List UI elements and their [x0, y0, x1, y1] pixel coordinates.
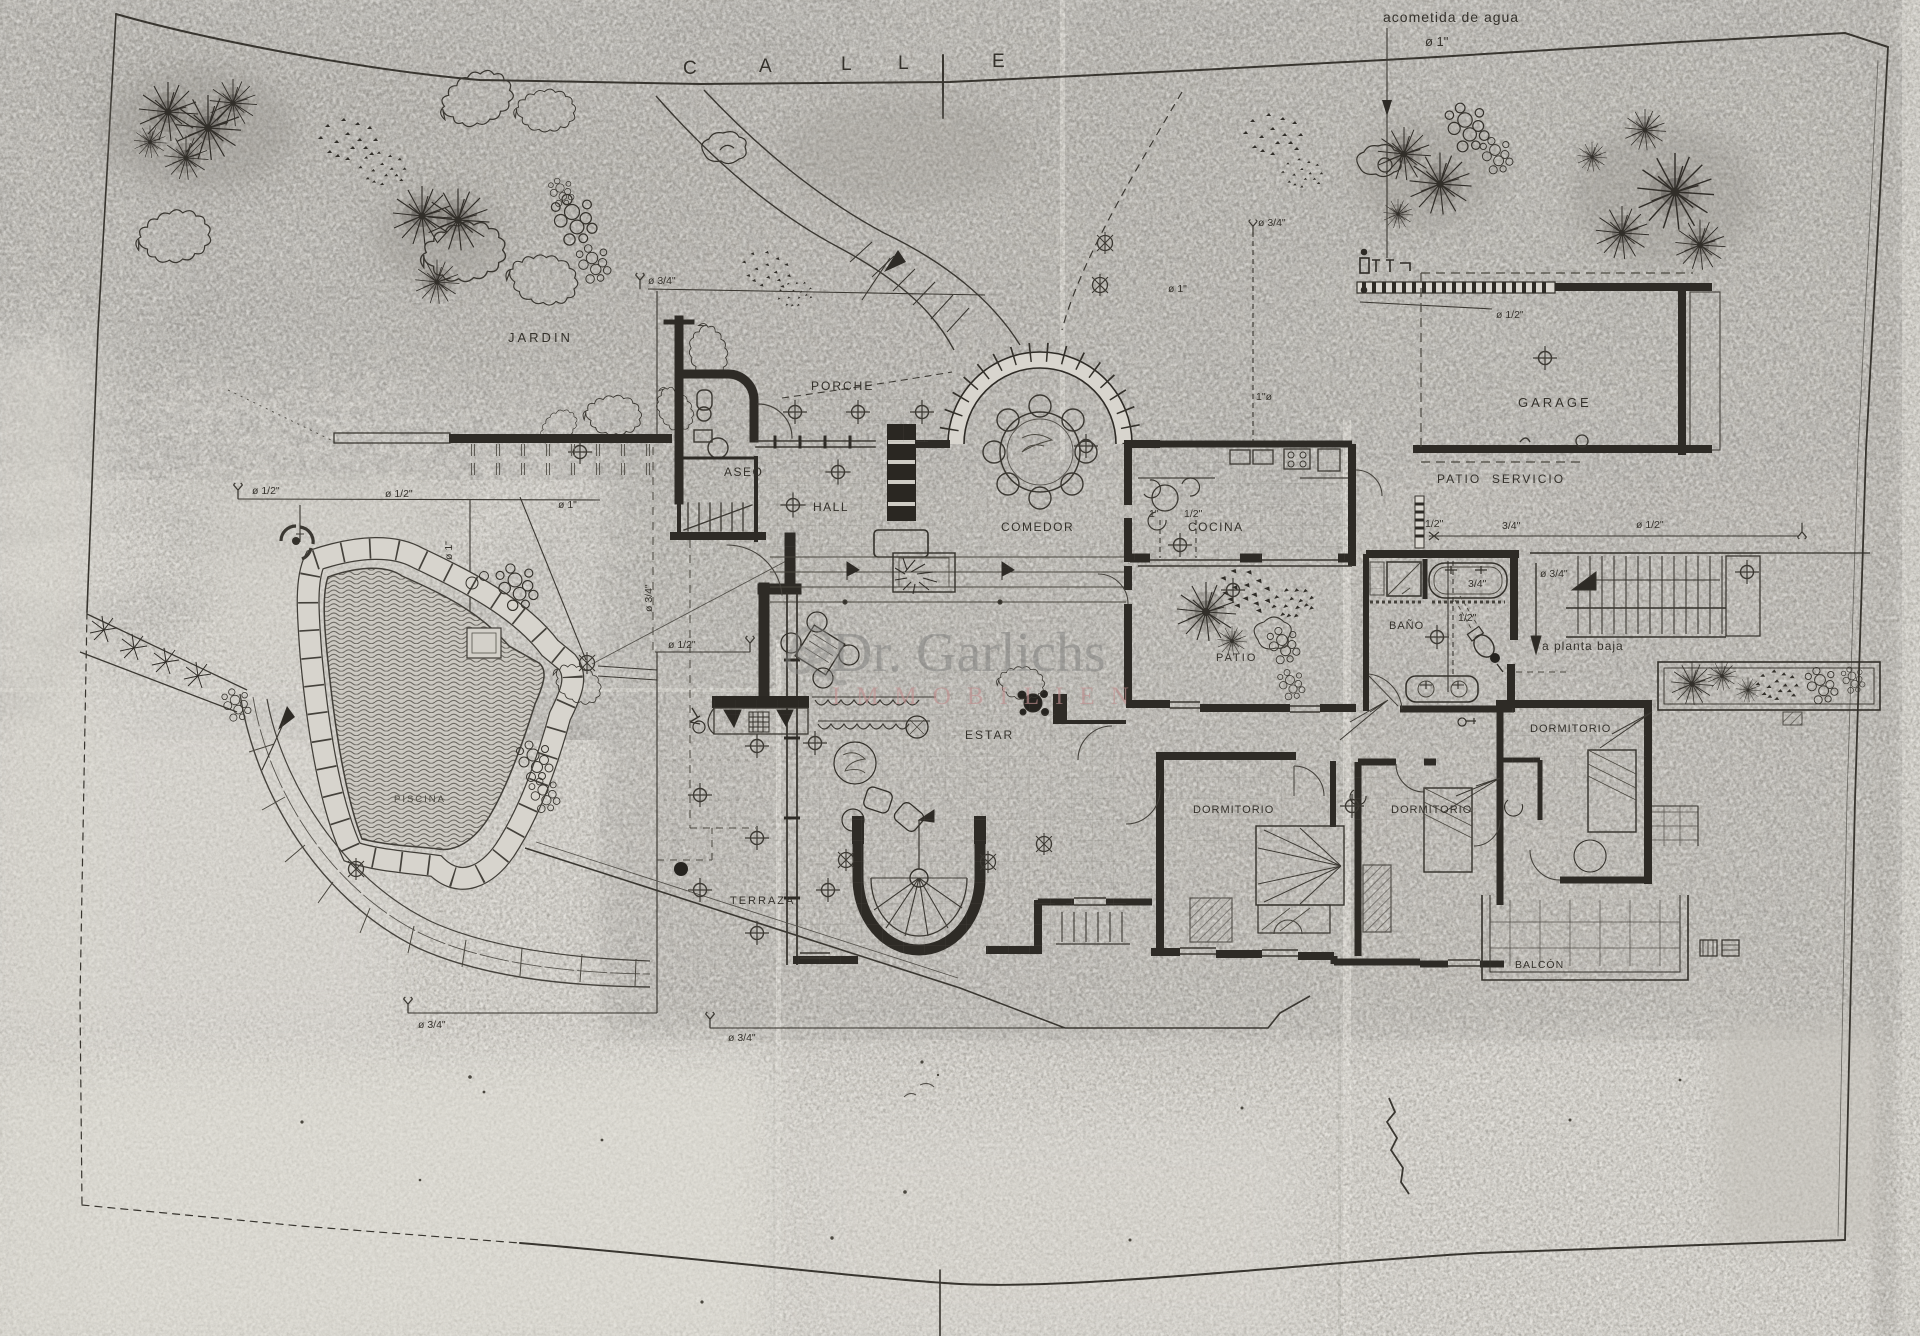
svg-text:a planta baja: a planta baja: [1542, 639, 1624, 653]
svg-text:1/2": 1/2": [1184, 508, 1203, 520]
svg-text:ø 1/2": ø 1/2": [668, 639, 696, 651]
svg-text:DORMITORIO: DORMITORIO: [1193, 804, 1274, 816]
svg-text:1"ø: 1"ø: [1256, 391, 1273, 403]
svg-text:E: E: [992, 51, 1005, 72]
svg-text:PATIO SERVICIO: PATIO SERVICIO: [1437, 472, 1565, 486]
svg-text:ø 3/4": ø 3/4": [418, 1019, 446, 1031]
svg-text:ø 3/4": ø 3/4": [728, 1032, 756, 1044]
svg-text:ø 1": ø 1": [1168, 283, 1187, 295]
svg-text:ESTAR: ESTAR: [965, 728, 1014, 742]
svg-text:ø 1": ø 1": [1425, 34, 1449, 49]
svg-text:ø 1": ø 1": [558, 499, 577, 511]
svg-text:COMEDOR: COMEDOR: [1001, 520, 1074, 534]
svg-text:TERRAZA: TERRAZA: [730, 895, 795, 907]
svg-text:COCINA: COCINA: [1188, 520, 1244, 534]
svg-text:PISCINA: PISCINA: [394, 794, 446, 805]
svg-text:BAÑO: BAÑO: [1389, 619, 1424, 632]
svg-text:ø 3/4": ø 3/4": [1258, 217, 1286, 229]
svg-text:ø 3/4": ø 3/4": [1540, 568, 1568, 580]
svg-text:1/2": 1/2": [1458, 612, 1477, 624]
svg-text:ø 3/4": ø 3/4": [643, 584, 655, 612]
svg-text:ø 3/4": ø 3/4": [648, 275, 676, 287]
svg-text:C: C: [683, 58, 697, 79]
svg-text:DORMITORIO: DORMITORIO: [1391, 804, 1472, 816]
svg-text:L: L: [841, 54, 852, 75]
svg-text:ø 1": ø 1": [443, 541, 455, 560]
svg-text:ø 1/2": ø 1/2": [252, 485, 280, 497]
svg-text:acometida de agua: acometida de agua: [1383, 9, 1519, 25]
svg-text:ø 1/2": ø 1/2": [385, 488, 413, 500]
svg-text:IMMOBILIEN: IMMOBILIEN: [832, 683, 1145, 710]
svg-text:BALCÓN: BALCÓN: [1515, 958, 1564, 971]
svg-text:ø 1/2": ø 1/2": [1496, 309, 1524, 321]
svg-text:A: A: [759, 56, 772, 77]
svg-text:ASEO: ASEO: [724, 465, 763, 479]
svg-text:3/4": 3/4": [1502, 520, 1521, 532]
svg-text:L: L: [898, 53, 909, 74]
svg-text:HALL: HALL: [813, 500, 849, 514]
svg-text:DORMITORIO: DORMITORIO: [1530, 723, 1611, 735]
svg-text:PORCHE: PORCHE: [811, 379, 874, 393]
svg-text:GARAGE: GARAGE: [1518, 395, 1592, 410]
svg-text:3/4": 3/4": [1468, 578, 1487, 590]
svg-text:JARDIN: JARDIN: [508, 330, 573, 345]
svg-text:1/2": 1/2": [1425, 518, 1444, 530]
svg-text:PATIO: PATIO: [1216, 652, 1257, 664]
svg-text:1": 1": [1149, 508, 1159, 520]
svg-text:ø 1/2": ø 1/2": [1636, 519, 1664, 531]
svg-text:Dr. Garlichs: Dr. Garlichs: [832, 622, 1106, 684]
